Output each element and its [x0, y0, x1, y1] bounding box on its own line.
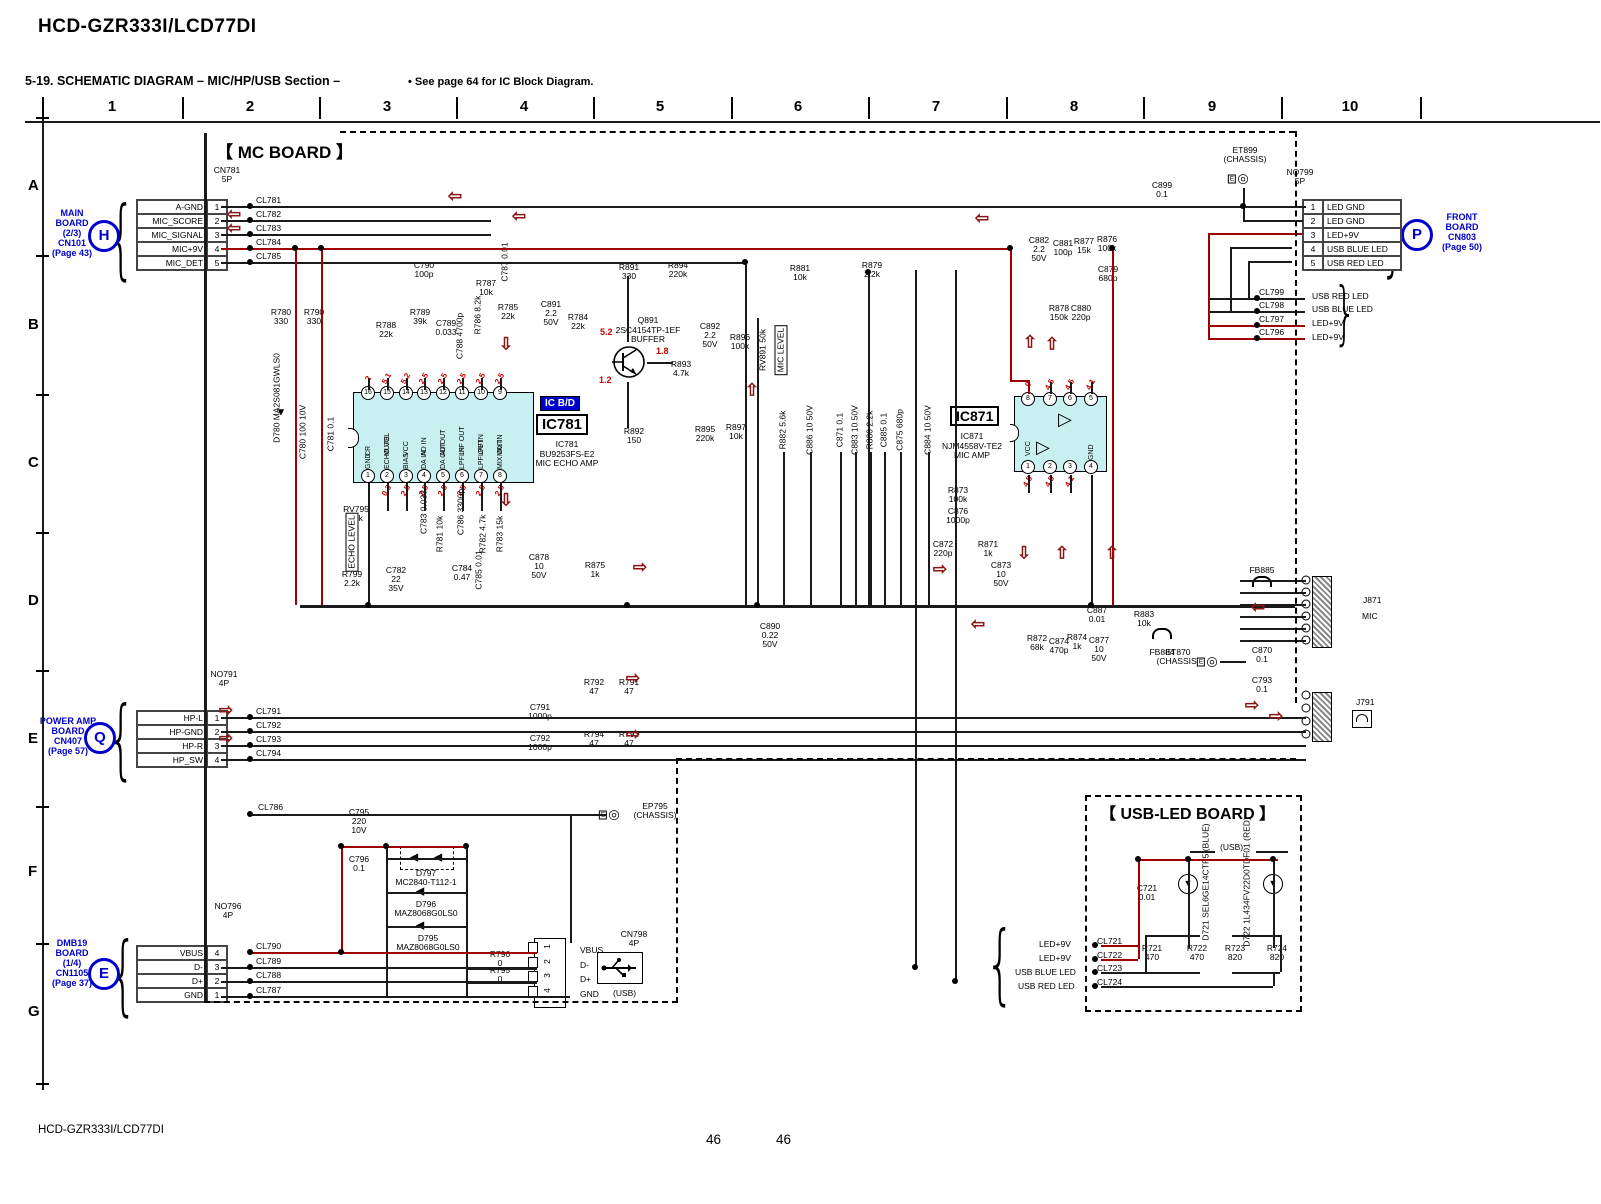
- headphone-icon: [1356, 714, 1368, 722]
- wire: [386, 892, 466, 894]
- wire: [757, 318, 759, 605]
- wire: [295, 248, 297, 605]
- junction-dot: [338, 843, 344, 849]
- ruler-tick: [36, 394, 49, 396]
- component-label: D721 SEL6GE14CTP5 (BLUE): [1202, 823, 1211, 940]
- wire-label: CL793: [256, 735, 281, 744]
- board-label-line: BOARD: [52, 218, 92, 228]
- wire: [386, 858, 466, 860]
- ruler-tick: [36, 532, 49, 534]
- grid-row-letter: G: [28, 1003, 40, 1020]
- pin-label: ECHO VOL: [384, 412, 391, 469]
- component-label: D796 MAZ8068G0LS0: [394, 900, 457, 918]
- component-label: C891 2.2 50V: [541, 300, 561, 327]
- wire: [466, 982, 537, 984]
- wire-label: GND: [580, 990, 599, 999]
- pin-label: DA IN: [421, 412, 428, 469]
- wire: [221, 248, 1010, 250]
- junction-dot: [1092, 956, 1098, 962]
- wire: [1091, 382, 1093, 394]
- component-label: R871 1k: [978, 540, 998, 558]
- grid-row-letter: F: [28, 863, 37, 880]
- wire: [481, 483, 483, 511]
- grid-row-letter: A: [28, 177, 39, 194]
- pin-circle: 1: [361, 469, 375, 483]
- junction-dot: [912, 964, 918, 970]
- wire: [1101, 986, 1273, 988]
- wire: [855, 452, 857, 605]
- wire: [221, 731, 1306, 733]
- grid-column-number: 5: [656, 98, 664, 115]
- signal-arrow: ⇧: [1045, 336, 1059, 353]
- signal-arrow: ⇧: [1055, 545, 1069, 562]
- junction-dot: [247, 714, 253, 720]
- footer-model: HCD-GZR333I/LCD77DI: [38, 1124, 164, 1136]
- ruler-tick: [319, 97, 321, 119]
- board-circle-letter: H: [88, 220, 120, 252]
- pin-label: LPF OUT: [478, 412, 485, 469]
- connector-ref-pins: 5P: [1287, 177, 1314, 186]
- board-border-dash: [1295, 131, 1297, 703]
- pin-name: USB RED LED: [1323, 256, 1401, 270]
- wire: [443, 483, 445, 511]
- junction-dot: [1135, 856, 1141, 862]
- signal-arrow: ⇦: [975, 210, 989, 227]
- component-label: C796 0.1: [349, 855, 369, 873]
- board-label-line: (Page 50): [1442, 242, 1482, 252]
- junction-dot: [247, 993, 253, 999]
- pin-name: GND: [137, 988, 207, 1002]
- grid-column-number: 7: [932, 98, 940, 115]
- component-label: C784 0.47: [452, 564, 472, 582]
- wire: [810, 452, 812, 605]
- wire: [406, 378, 408, 390]
- brace: {: [985, 912, 1014, 1015]
- junction-dot: [247, 949, 253, 955]
- pin-label: MIX OUT: [497, 412, 504, 469]
- junction-dot: [865, 269, 871, 275]
- signal-arrow: ⇧: [1023, 334, 1037, 351]
- wire: [1220, 661, 1246, 663]
- wire: [1248, 261, 1292, 263]
- wire: [900, 452, 902, 605]
- component-label: R784 22k: [568, 313, 588, 331]
- page-number: 46: [706, 1132, 721, 1147]
- component-label: R872 68k: [1027, 634, 1047, 652]
- wire: [221, 206, 1306, 208]
- grid-column-number: 8: [1070, 98, 1078, 115]
- ic781-part-label: IC781 BU9253FS-E2 MIC ECHO AMP: [536, 440, 599, 469]
- headphone-jack-body: [1312, 692, 1332, 742]
- pin-name: MIC+9V: [137, 242, 207, 256]
- junction-dot: [1254, 308, 1260, 314]
- component-label: C875 680p: [896, 409, 905, 451]
- grid-column-number: 4: [520, 98, 528, 115]
- wire: [250, 814, 607, 816]
- component-label: C786 3300p: [457, 489, 466, 535]
- board-circle-letter: E: [88, 958, 120, 990]
- grid-row-letter: E: [28, 730, 38, 747]
- wire-label: 1.8: [656, 347, 669, 356]
- component-label: R781 10k: [436, 516, 445, 552]
- mic-jack-body: [1312, 576, 1332, 648]
- pin-number: 2: [1303, 214, 1323, 228]
- signal-arrow: ⇨: [1269, 708, 1283, 725]
- connector-row: 3 LED+9V: [1303, 228, 1401, 242]
- ic871-part-label: IC871 NJM4558V-TE2 MIC AMP: [942, 432, 1002, 461]
- grid-column-number: 6: [794, 98, 802, 115]
- pin-number: 1: [1303, 200, 1323, 214]
- junction-dot: [338, 949, 344, 955]
- pin-circle: 6: [1063, 392, 1077, 406]
- wire: [321, 248, 323, 605]
- wire-label: D-: [580, 961, 589, 970]
- wire-label: CL790: [256, 942, 281, 951]
- grid-row-letter: C: [28, 454, 39, 471]
- wire: [462, 378, 464, 390]
- signal-arrow: ⇨: [219, 702, 233, 719]
- pin-name: HP-GND: [137, 725, 207, 739]
- wire: [1050, 382, 1052, 394]
- wire-label: 5.2: [600, 328, 613, 337]
- wire-label: (USB): [613, 989, 636, 998]
- component-label: R894 220k: [668, 261, 688, 279]
- junction-dot: [1092, 983, 1098, 989]
- component-label: FB884: [1149, 648, 1174, 657]
- connector-ref: NO796 4P: [215, 902, 242, 920]
- pin-circle: 8: [1021, 392, 1035, 406]
- grid-column-number: 3: [383, 98, 391, 115]
- wire-label: CL797: [1259, 315, 1284, 324]
- board-label-line: MAIN: [52, 208, 92, 218]
- component-label: R789 39k: [410, 308, 430, 326]
- junction-dot: [247, 756, 253, 762]
- wire: [443, 378, 445, 390]
- wire: [647, 362, 673, 364]
- wire: [42, 97, 44, 1090]
- component-label: C887 0.01: [1087, 606, 1107, 624]
- pin-number: 5: [1303, 256, 1323, 270]
- headphone-icon-box: [1352, 710, 1372, 728]
- junction-dot: [1092, 969, 1098, 975]
- junction-dot: [292, 245, 298, 251]
- wire: [387, 378, 389, 390]
- component-label: R893 4.7k: [671, 360, 691, 378]
- wire: [1256, 851, 1288, 853]
- transistor-q891-label: Q891 2SC4154TP-1EF BUFFER: [616, 316, 681, 345]
- board-label-line: CN803: [1442, 232, 1482, 242]
- component-label: R792 47: [584, 678, 604, 696]
- component-label: R875 1k: [585, 561, 605, 579]
- component-label: C721 0.01: [1137, 884, 1157, 902]
- ruler-tick: [36, 943, 49, 945]
- usb-pin-number: 1: [543, 944, 552, 949]
- wire: [1243, 220, 1303, 222]
- ic871-box-label: IC871: [950, 406, 999, 426]
- wire-label: MIC: [1362, 612, 1378, 621]
- wire: [1091, 475, 1093, 605]
- wire-label: D+: [580, 975, 591, 984]
- wire: [221, 234, 491, 236]
- usb-pin-number: 4: [543, 988, 552, 993]
- connector-row: MIC_SIGNAL 3: [137, 228, 227, 242]
- pin-name: MIC_SCORE: [137, 214, 207, 228]
- ruler-tick: [1143, 97, 1145, 119]
- pin-label: LPF IN: [459, 412, 466, 469]
- signal-arrow: ⇩: [499, 492, 513, 509]
- pin-number: 4: [207, 946, 227, 960]
- page-number: 46: [776, 1132, 791, 1147]
- wire-label: USB BLUE LED: [1312, 305, 1373, 314]
- board-label-line: CN407: [40, 736, 96, 746]
- component-label: C882 2.2 50V: [1029, 236, 1049, 263]
- connector-row: 2 LED GND: [1303, 214, 1401, 228]
- wire-label: CL786: [258, 803, 283, 812]
- fb884-icon: [1152, 628, 1172, 639]
- board-border-dash: [676, 758, 1296, 760]
- junction-dot: [247, 978, 253, 984]
- component-label: R883 10k: [1134, 610, 1154, 628]
- component-label: R892 150: [624, 427, 644, 445]
- wire: [570, 814, 572, 943]
- component-label: R780 330: [271, 308, 291, 326]
- junction-dot: [1254, 322, 1260, 328]
- component-label: C780 100 10V: [299, 405, 308, 459]
- board-label: MAINBOARD(2/3)CN101(Page 43): [52, 208, 92, 258]
- junction-dot: [1088, 602, 1094, 608]
- wire-label: CL789: [256, 957, 281, 966]
- pin-name: D-: [137, 960, 207, 974]
- component-label: R895 220k: [695, 425, 715, 443]
- wire-label: CL783: [256, 224, 281, 233]
- page-title-model: HCD-GZR333I/LCD77DI: [38, 16, 257, 38]
- wire: [745, 262, 747, 605]
- wire: [406, 483, 408, 511]
- chassis-label: ET899 (CHASSIS): [1224, 146, 1267, 164]
- junction-dot: [463, 843, 469, 849]
- wire: [1248, 261, 1250, 298]
- grid-column-number: 2: [246, 98, 254, 115]
- connector-ref: CN798 4P: [621, 930, 647, 948]
- component-label: C886 10 50V: [806, 405, 815, 455]
- component-label: C870 0.1: [1252, 646, 1272, 664]
- board-label-line: (Page 43): [52, 248, 92, 258]
- connector-row: MIC_DET 5: [137, 256, 227, 270]
- component-label: C789 0.033: [435, 319, 456, 337]
- wire-label: J871: [1363, 596, 1381, 605]
- component-label: R881 10k: [790, 264, 810, 282]
- wire: [1208, 233, 1302, 235]
- ruler-tick: [36, 670, 49, 672]
- pin-name: LED GND: [1323, 200, 1401, 214]
- wire-label: USB RED LED: [1018, 982, 1075, 991]
- junction-dot: [1007, 245, 1013, 251]
- wire: [1208, 233, 1210, 338]
- connector-row: 4 USB BLUE LED: [1303, 242, 1401, 256]
- pin-name: LED+9V: [1323, 228, 1401, 242]
- component-label: R722 470: [1187, 944, 1207, 962]
- wire: [221, 262, 745, 264]
- wire: [840, 452, 842, 605]
- component-label: R897 10k: [726, 423, 746, 441]
- wire: [221, 717, 1306, 719]
- component-label: C781 0.1: [327, 417, 336, 452]
- junction-dot: [247, 217, 253, 223]
- usb-pin-number: 2: [543, 959, 552, 964]
- connector-ref: NO799 5P: [1287, 168, 1314, 186]
- board-label-line: POWER AMP: [40, 716, 96, 726]
- wire-label: USB BLUE LED: [1015, 968, 1076, 977]
- connector-table: A-GND 1 MIC_SCORE 2 MIC_SIGNAL 3 MIC+9V …: [136, 199, 228, 271]
- board-border-dash: [676, 758, 678, 1003]
- wire: [1232, 935, 1280, 937]
- signal-arrow: ⇩: [1017, 545, 1031, 562]
- wire: [1188, 972, 1190, 974]
- connector-row: HP-GND 2: [137, 725, 227, 739]
- pin-name: HP-L: [137, 711, 207, 725]
- board-label-line: BOARD: [1442, 222, 1482, 232]
- pin-number: 1: [207, 988, 227, 1002]
- signal-arrow: ⇨: [626, 670, 640, 687]
- ruler-tick: [36, 1083, 49, 1085]
- component-label: R724 820: [1267, 944, 1287, 962]
- pin-name: LED GND: [1323, 214, 1401, 228]
- junction-dot: [1109, 245, 1115, 251]
- component-label: C877 10 50V: [1089, 636, 1109, 663]
- signal-arrow: ⇧: [745, 382, 759, 399]
- component-label: R788 22k: [376, 321, 396, 339]
- ic781-box-label: IC781: [536, 414, 588, 435]
- pin-name: USB BLUE LED: [1323, 242, 1401, 256]
- signal-arrow: ⇨: [933, 561, 947, 578]
- component-label: C883 10 50V: [851, 405, 860, 455]
- wire: [1138, 859, 1140, 959]
- board-border-dash: [340, 131, 1295, 133]
- signal-arrow: ⇨: [1245, 697, 1259, 714]
- wire: [1230, 247, 1292, 249]
- wire: [341, 846, 466, 848]
- wire-label: LED+9V: [1039, 954, 1071, 963]
- board-border-dash: [204, 1001, 678, 1003]
- signal-arrow: ⇨: [219, 730, 233, 747]
- board-label: POWER AMPBOARDCN407(Page 57): [40, 716, 96, 756]
- component-label: C885 0.1: [880, 413, 889, 448]
- pin-name: VBUS: [137, 946, 207, 960]
- component-label: C792 1000p: [528, 734, 552, 752]
- wire-label: CL788: [256, 971, 281, 980]
- junction-dot: [1254, 295, 1260, 301]
- opamp-triangle: ▷: [1058, 410, 1072, 428]
- wire: [466, 845, 468, 996]
- wire: [955, 270, 957, 981]
- component-label: D797 MC2840-T112-1: [395, 869, 456, 887]
- wire-label: LED+9V: [1312, 319, 1344, 328]
- wire: [915, 270, 917, 967]
- connector-ref-pins: 4P: [621, 939, 647, 948]
- wire: [884, 452, 886, 605]
- component-label: R880 2.2k: [866, 411, 875, 450]
- component-label: R787 10k: [476, 279, 496, 297]
- board-label: FRONTBOARDCN803(Page 50): [1442, 212, 1482, 252]
- wire: [1280, 935, 1282, 972]
- wire: [1138, 859, 1278, 861]
- wire: [386, 845, 388, 996]
- jack-pin: [1302, 691, 1311, 700]
- wire-label: CL787: [256, 986, 281, 995]
- wire: [1101, 972, 1188, 974]
- wire: [1070, 382, 1072, 394]
- signal-arrow: ⇦: [512, 208, 526, 225]
- chassis-earth-tag: E: [1197, 658, 1205, 667]
- connector-row: MIC_SCORE 2: [137, 214, 227, 228]
- connector-row: D- 3: [137, 960, 227, 974]
- wire: [1190, 851, 1215, 853]
- chassis-label: EP795 (CHASSIS): [634, 802, 677, 820]
- connector-ref: CN781 5P: [214, 166, 240, 184]
- ruler-tick: [868, 97, 870, 119]
- component-label: R799 2.2k: [342, 570, 362, 588]
- junction-dot: [318, 245, 324, 251]
- usb-pin-number: 3: [543, 974, 552, 979]
- pin-circle: 7: [1043, 392, 1057, 406]
- component-label: R876 100k: [1097, 235, 1117, 253]
- signal-arrow: ⇦: [1251, 599, 1265, 616]
- board-label-line: (Page 37): [52, 978, 92, 988]
- wire: [481, 378, 483, 390]
- component-label: R873 100k: [948, 486, 968, 504]
- junction-dot: [247, 245, 253, 251]
- signal-arrow: ⇧: [1105, 545, 1119, 562]
- grid-column-number: 10: [1342, 98, 1359, 115]
- connector-row: HP-L 1: [137, 711, 227, 725]
- pin-circle: 5: [1084, 392, 1098, 406]
- connector-row: 1 LED GND: [1303, 200, 1401, 214]
- wire: [300, 605, 1295, 608]
- pin-label: BIAS: [403, 412, 410, 469]
- ruler-tick: [36, 806, 49, 808]
- connector-row: HP-R 3: [137, 739, 227, 753]
- section-note: • See page 64 for IC Block Diagram.: [408, 76, 593, 88]
- connector-row: D+ 2: [137, 974, 227, 988]
- wire-label: CL799: [1259, 288, 1284, 297]
- wire: [387, 483, 389, 511]
- board-border: [204, 133, 207, 1003]
- junction-dot: [1240, 203, 1246, 209]
- junction-dot: [1254, 335, 1260, 341]
- junction-dot: [742, 259, 748, 265]
- component-label: R877 15k: [1074, 237, 1094, 255]
- connector-row: 5 USB RED LED: [1303, 256, 1401, 270]
- wire: [1101, 959, 1138, 961]
- junction-dot: [754, 602, 760, 608]
- transistor-q891-symbol: [610, 342, 648, 382]
- component-label: C878 10 50V: [529, 553, 549, 580]
- wire: [500, 378, 502, 390]
- signal-arrow: ⇩: [499, 336, 513, 353]
- opamp-triangle: ▷: [1036, 438, 1050, 456]
- component-label: R786 8.2k: [474, 296, 483, 335]
- board-label-line: DMB19: [52, 938, 92, 948]
- wire-label: CL784: [256, 238, 281, 247]
- wire: [250, 952, 537, 954]
- pin-circle: 4: [1084, 460, 1098, 474]
- wire-label: LED+9V: [1312, 333, 1344, 342]
- wire-label: LED+9V: [1039, 940, 1071, 949]
- connector-table: VBUS 4 D- 3 D+ 2 GND 1: [136, 945, 228, 1003]
- component-label: C793 0.1: [1252, 676, 1272, 694]
- component-label: C871 0.1: [836, 413, 845, 448]
- section-title: 5-19. SCHEMATIC DIAGRAM – MIC/HP/USB Sec…: [25, 74, 340, 88]
